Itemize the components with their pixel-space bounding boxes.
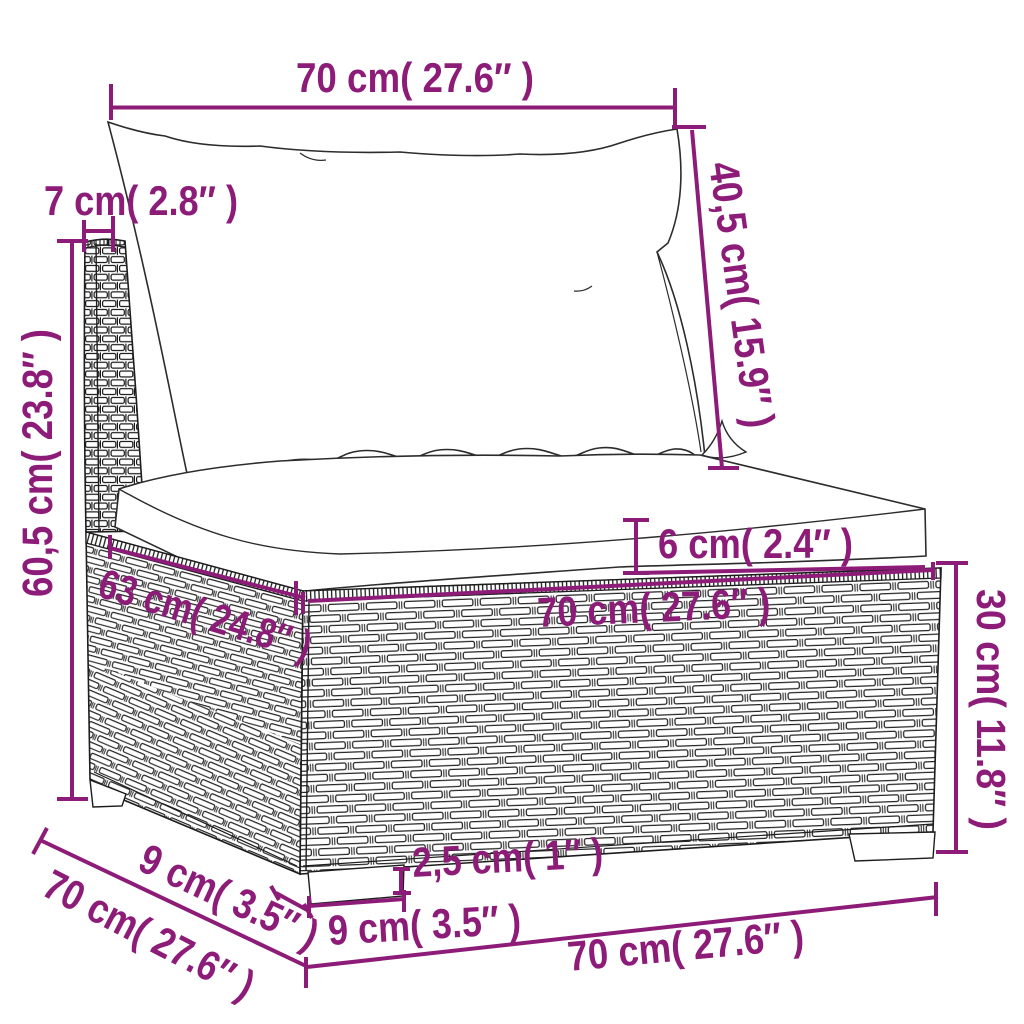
svg-text:6 cm( 2.4″ ): 6 cm( 2.4″ ) <box>658 520 853 567</box>
svg-text:70 cm( 27.6″ ): 70 cm( 27.6″ ) <box>296 54 534 101</box>
svg-text:2,5 cm( 1″ ): 2,5 cm( 1″ ) <box>411 829 604 886</box>
svg-text:30 cm( 11.8″ ): 30 cm( 11.8″ ) <box>968 589 1014 830</box>
svg-text:7 cm( 2.8″ ): 7 cm( 2.8″ ) <box>44 177 238 224</box>
svg-text:60,5 cm( 23.8″ ): 60,5 cm( 23.8″ ) <box>14 329 62 597</box>
